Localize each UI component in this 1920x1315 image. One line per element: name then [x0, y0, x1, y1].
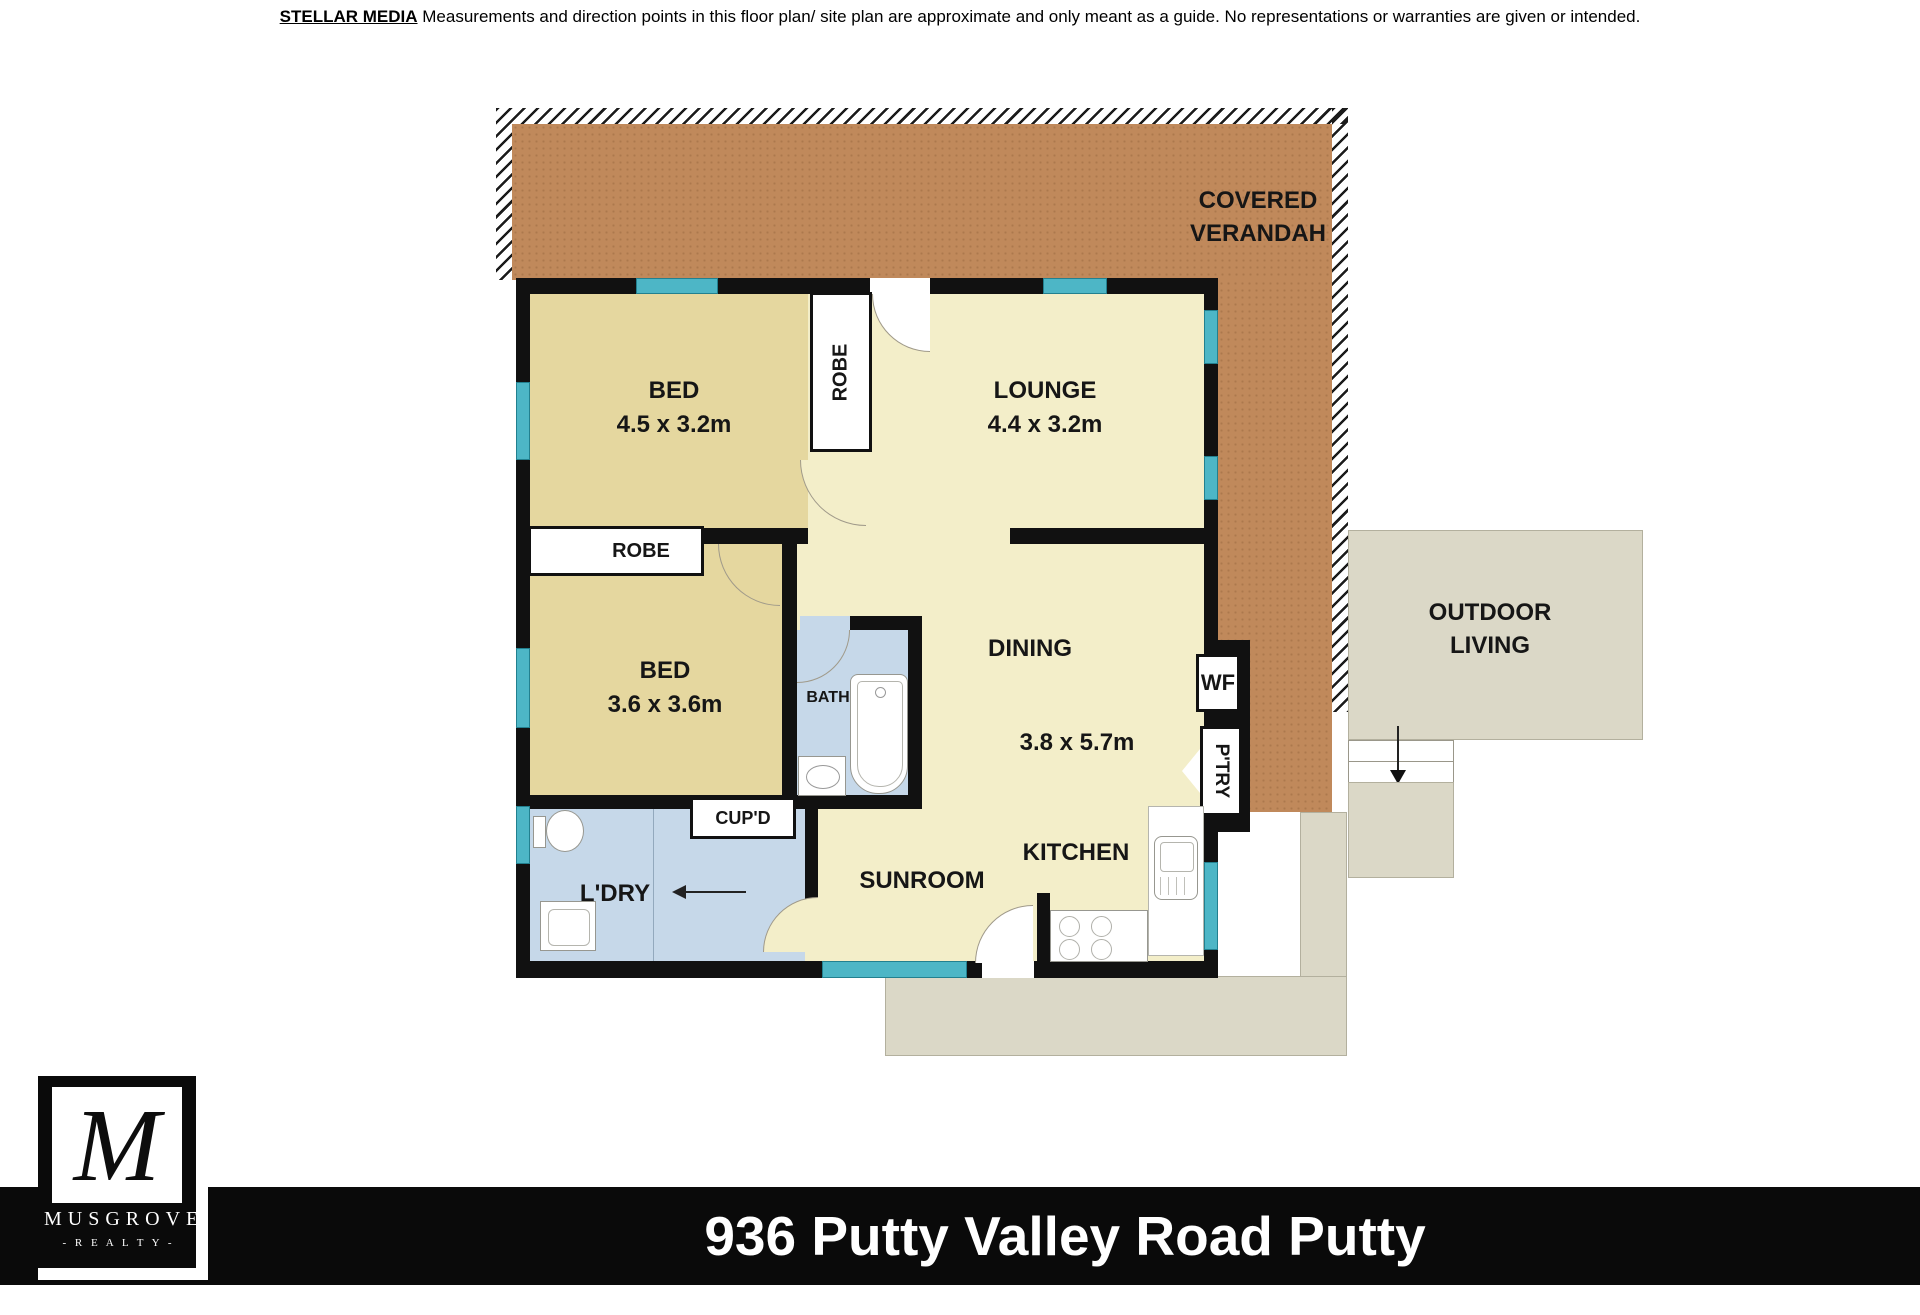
kitchen-label: KITCHEN [976, 838, 1176, 868]
robe-bed2-box: ROBE [528, 526, 704, 576]
pantry-label: P'TRY [1209, 744, 1233, 799]
bed2-dims: 3.6 x 3.6m [530, 690, 800, 720]
burner [1091, 916, 1112, 937]
window-lounge-north [1043, 278, 1107, 294]
disclaimer-brand: STELLAR MEDIA [280, 7, 418, 26]
verandah-hatch-top [496, 108, 1348, 124]
verandah-label-line2: VERANDAH [1158, 219, 1358, 249]
bath-door-gap [800, 616, 850, 630]
laundry-label: L'DRY [560, 879, 670, 909]
verandah-label-line1: COVERED [1158, 186, 1358, 216]
window-laundry-west [516, 806, 530, 864]
robe-bed1-box: ROBE [810, 292, 872, 452]
disclaimer-text: Measurements and direction points in thi… [422, 7, 1640, 26]
step-upper [1348, 740, 1454, 762]
front-door-gap [870, 278, 930, 294]
window-bed2-west [516, 648, 530, 728]
bed1-dims: 4.5 x 3.2m [534, 410, 814, 440]
window-sunroom-south [822, 961, 967, 978]
sunroom-label: SUNROOM [822, 866, 1022, 896]
bath-label: BATH [798, 688, 858, 708]
landing-area [1348, 782, 1454, 878]
steps-arrow-line [1397, 726, 1399, 772]
agency-monogram: M [52, 1087, 182, 1203]
basin-icon [798, 756, 846, 796]
patio-connector [1300, 812, 1347, 978]
window-bed1-north [636, 278, 718, 294]
stove-icon [1050, 910, 1148, 962]
wall-lounge-south [1010, 528, 1218, 544]
robe-bed1-label: ROBE [829, 343, 854, 401]
burner [1059, 916, 1080, 937]
dining-dims: 3.8 x 5.7m [977, 728, 1177, 758]
cupboard-label: CUP'D [715, 807, 770, 830]
agency-logo-box: M MUSGROVE - R E A L T Y - [38, 1076, 196, 1268]
wood-fire-box: WF [1196, 654, 1240, 712]
agency-tagline: - R E A L T Y - [38, 1237, 196, 1249]
wood-fire-label: WF [1201, 669, 1235, 697]
lounge-name: LOUNGE [910, 376, 1180, 406]
disclaimer: STELLAR MEDIA Measurements and direction… [0, 7, 1920, 27]
bed1-name: BED [534, 376, 814, 406]
burner [1091, 939, 1112, 960]
wall-kitchen-stub [1037, 893, 1050, 963]
bathtub-drain [875, 687, 886, 698]
window-bed1-west [516, 382, 530, 460]
pantry-box: P'TRY [1200, 726, 1242, 816]
dining-name: DINING [930, 634, 1130, 664]
outdoor-living-label-line2: LIVING [1390, 631, 1590, 661]
sink-drainer [1160, 877, 1192, 895]
robe-bed2-label: ROBE [612, 539, 670, 564]
cupboard-box: CUP'D [690, 797, 796, 839]
outdoor-living-label-line1: OUTDOOR [1390, 598, 1590, 628]
agency-logo: M MUSGROVE - R E A L T Y - [38, 1076, 208, 1280]
verandah-hatch-left [496, 108, 512, 280]
wall-bath-east [908, 616, 922, 809]
toilet-tank [533, 816, 546, 848]
pantry-notch-icon [1182, 749, 1200, 793]
floorplan-page: STELLAR MEDIA Measurements and direction… [0, 0, 1920, 1315]
agency-name: MUSGROVE [38, 1208, 196, 1231]
window-lounge-east [1204, 310, 1218, 364]
back-door-gap [982, 961, 1034, 978]
wall-laundry-east [805, 809, 818, 909]
wall-bath-north [850, 616, 908, 630]
bathtub-icon [850, 674, 908, 794]
agency-monogram-letter: M [74, 1086, 161, 1205]
basin-bowl [806, 765, 840, 789]
burner [1059, 939, 1080, 960]
bed2-name: BED [530, 656, 800, 686]
washtub-inner [548, 909, 590, 946]
window-kitchen-east [1204, 862, 1218, 950]
lounge-dims: 4.4 x 3.2m [910, 410, 1180, 440]
window-dining-east [1204, 456, 1218, 500]
property-address: 936 Putty Valley Road Putty [210, 1187, 1920, 1285]
bottom-patio [885, 976, 1347, 1056]
toilet-icon [546, 810, 584, 852]
laundry-arrow-line [686, 891, 746, 893]
laundry-arrow-icon [672, 885, 686, 899]
